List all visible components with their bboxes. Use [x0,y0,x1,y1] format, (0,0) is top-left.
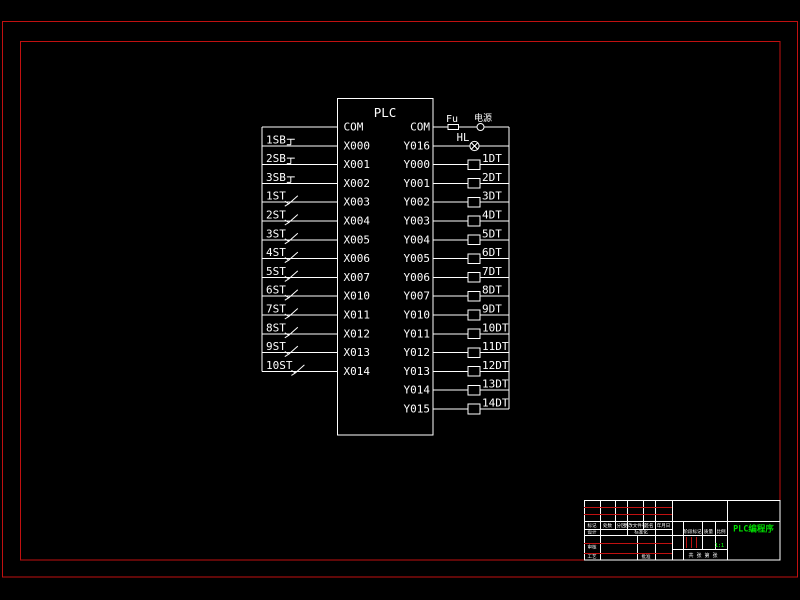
output-label: 1DT [482,152,502,165]
solenoid-icon [468,385,480,395]
input-label: 3ST [266,227,286,240]
plc-left-pin-label: X011 [344,309,371,322]
limit-switch-icon [291,365,304,376]
power-source-label: 电源 [474,112,492,124]
plc-right-pin-label: Y000 [404,158,431,171]
plc-left-pin-label: X002 [344,177,371,190]
input-label: 5ST [266,265,286,278]
input-circuit: 1SB2SB3SB1ST2ST3ST4ST5ST6ST7ST8ST9ST10ST [262,127,337,375]
solenoid-icon [468,254,480,264]
plc-block: PLC COMX000X001X002X003X004X005X006X007X… [338,99,434,436]
plc-right-pin-label: Y010 [404,309,431,322]
input-label: 1ST [266,190,286,203]
plc-title: PLC [374,105,397,120]
output-label: 13DT [482,378,509,391]
pushbutton-icon [287,139,295,145]
input-label: 2ST [266,209,286,222]
input-label: 3SB [266,171,286,184]
plc-wiring-diagram: 1SB2SB3SB1ST2ST3ST4ST5ST6ST7ST8ST9ST10ST… [0,0,800,600]
output-label: 14DT [482,397,509,410]
drawing-title: PLC编程序 [733,524,774,535]
solenoid-icon [468,216,480,226]
plc-right-pin-label: Y006 [404,271,431,284]
plc-right-pin-label: Y007 [404,290,431,303]
output-label: 10DT [482,321,509,334]
fuse-label: Fu [446,114,458,125]
solenoid-icon [468,291,480,301]
plc-right-pin-label: Y003 [404,215,431,228]
plc-right-pin-label: Y013 [404,365,431,378]
solenoid-icon [468,273,480,283]
output-label: 12DT [482,359,509,372]
standardize-label: 标准化 [634,528,648,535]
solenoid-icon [468,197,480,207]
plc-right-pin-label: Y005 [404,252,431,265]
output-label: 4DT [482,209,502,222]
plc-right-pin-label: Y004 [404,233,431,246]
solenoid-icon [468,160,480,170]
plc-left-pin-label: X001 [344,158,371,171]
output-label: 3DT [482,190,502,203]
revision-header-label: 年月日 [657,522,671,529]
plc-right-pin-label: Y014 [404,384,431,397]
input-label: 7ST [266,303,286,316]
solenoid-icon [468,310,480,320]
design-label: 设计 [588,528,597,535]
cad-viewport: 1SB2SB3SB1ST2ST3ST4ST5ST6ST7ST8ST9ST10ST… [0,0,800,600]
plc-right-pin-label: Y016 [404,139,431,152]
input-label: 9ST [266,340,286,353]
solenoid-icon [468,179,480,189]
output-label: 6DT [482,246,502,259]
solenoid-icon [468,329,480,339]
plc-left-pin-label: X000 [344,139,371,152]
solenoid-icon [468,348,480,358]
stage-mark-label: 阶段标记 [684,528,702,535]
output-label: 8DT [482,284,502,297]
output-label: 11DT [482,340,509,353]
plc-right-pin-label: Y015 [404,403,431,416]
power-branch: Fu 电源 HL [446,112,492,151]
output-label: 9DT [482,303,502,316]
plc-left-pin-label: X010 [344,290,371,303]
solenoid-icon [468,404,480,414]
limit-switch-icon [285,233,298,244]
plc-left-pin-label: X003 [344,196,371,209]
input-label: 4ST [266,246,286,259]
plc-left-pin-label: X012 [344,327,371,340]
fuse-icon [448,125,459,130]
output-label: 2DT [482,171,502,184]
revision-header-label: 签名 [645,522,654,529]
input-label: 1SB [266,133,286,146]
limit-switch-icon [285,196,298,207]
pushbutton-icon [287,177,295,183]
audit-label: 审核 [588,543,597,550]
power-terminal-icon [477,124,484,131]
plc-right-pin-label: COM [410,121,430,134]
revision-header-label: 标记 [588,522,597,529]
output-label: 7DT [482,265,502,278]
approve-label: 批准 [642,553,651,560]
output-circuit: 1DT2DT3DT4DT5DT6DT7DT8DT9DT10DT11DT12DT1… [433,127,509,414]
output-label: 5DT [482,227,502,240]
limit-switch-icon [285,327,298,338]
plc-left-pin-label: X014 [344,365,371,378]
plc-right-pin-label: Y011 [404,327,431,340]
plc-left-pin-label: X013 [344,346,371,359]
limit-switch-icon [285,346,298,357]
revision-header-label: 处数 [603,522,612,529]
limit-switch-icon [285,252,298,263]
indicator-lamp-icon [470,141,479,150]
plc-left-pin-label: X006 [344,252,371,265]
quality-label: 质量 [704,528,713,535]
limit-switch-icon [285,309,298,320]
plc-left-pin-label: X004 [344,215,371,228]
lamp-label: HL [457,132,470,144]
title-block: 标记处数分区更改文件号签名年月日设计标准化审核工艺批准阶段标记质量比例1:1共 … [584,500,780,560]
limit-switch-icon [285,271,298,282]
plc-left-pin-label: X007 [344,271,371,284]
input-label: 6ST [266,284,286,297]
plc-right-pin-label: Y012 [404,346,431,359]
limit-switch-icon [285,290,298,301]
scale-label: 比例 [717,528,726,535]
plc-right-pin-label: Y001 [404,177,431,190]
plc-left-pin-label: X005 [344,233,371,246]
limit-switch-icon [285,215,298,226]
solenoid-icon [468,235,480,245]
input-label: 8ST [266,321,286,334]
scale-value: 1:1 [715,543,724,549]
pushbutton-icon [287,158,295,164]
solenoid-icon [468,367,480,377]
sheet-count-label: 共 张 第 张 [688,552,717,559]
process-label: 工艺 [588,554,597,560]
plc-left-pin-label: COM [344,121,364,134]
input-label: 10ST [266,359,293,372]
revision-header-label: 更改文件号 [624,522,647,529]
plc-right-pin-label: Y002 [404,196,431,209]
input-label: 2SB [266,152,286,165]
